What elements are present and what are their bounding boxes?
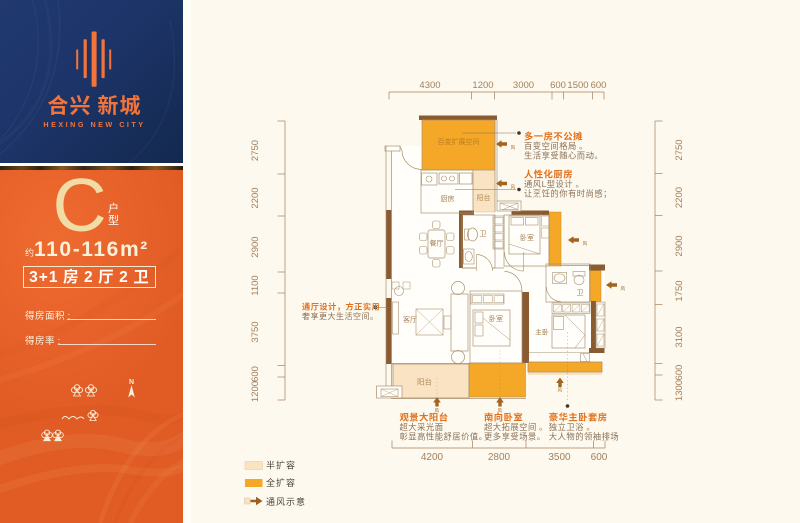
svg-text:卫: 卫 bbox=[480, 229, 487, 239]
svg-text:风: 风 bbox=[498, 408, 503, 414]
svg-text:600: 600 bbox=[250, 366, 261, 382]
svg-text:600: 600 bbox=[591, 80, 607, 91]
svg-text:主卧: 主卧 bbox=[535, 328, 549, 338]
svg-text:人性化厨房: 人性化厨房 bbox=[524, 167, 573, 181]
svg-text:2200: 2200 bbox=[674, 187, 685, 208]
svg-text:超大拓展空间 。: 超大拓展空间 。 bbox=[484, 421, 548, 433]
svg-text:2750: 2750 bbox=[250, 140, 261, 161]
svg-text:多一房不公摊: 多一房不公摊 bbox=[524, 129, 583, 143]
svg-text:全扩容: 全扩容 bbox=[266, 476, 296, 489]
svg-text:独立卫浴 。: 独立卫浴 。 bbox=[549, 421, 595, 433]
svg-text:南向卧室: 南向卧室 bbox=[484, 410, 523, 424]
svg-text:通风示意: 通风示意 bbox=[266, 495, 306, 508]
svg-text:3500: 3500 bbox=[548, 452, 571, 463]
svg-text:客厅: 客厅 bbox=[403, 315, 417, 325]
svg-text:生活享受随心而动。: 生活享受随心而动。 bbox=[524, 150, 603, 162]
svg-text:通风L型设计 。: 通风L型设计 。 bbox=[524, 178, 584, 190]
svg-text:半扩容: 半扩容 bbox=[266, 459, 296, 472]
svg-text:彰显高性能舒居价值。: 彰显高性能舒居价值。 bbox=[400, 431, 488, 443]
svg-text:1300: 1300 bbox=[674, 380, 685, 401]
svg-text:大人物的领袖排场: 大人物的领袖排场 bbox=[549, 431, 619, 443]
svg-text:600: 600 bbox=[550, 80, 566, 91]
svg-text:2900: 2900 bbox=[674, 235, 685, 256]
svg-text:2900: 2900 bbox=[250, 236, 261, 257]
svg-text:奢享更大生活空间。: 奢享更大生活空间。 bbox=[302, 311, 379, 322]
svg-text:百变空间格局 。: 百变空间格局 。 bbox=[524, 140, 588, 152]
svg-text:4300: 4300 bbox=[419, 80, 440, 91]
svg-text:1500: 1500 bbox=[567, 80, 588, 91]
svg-text:阳台: 阳台 bbox=[477, 193, 491, 203]
svg-text:卧室: 卧室 bbox=[520, 233, 534, 243]
svg-text:卧室: 卧室 bbox=[489, 314, 503, 324]
svg-text:2800: 2800 bbox=[488, 452, 511, 463]
svg-text:600: 600 bbox=[591, 452, 608, 463]
svg-text:1200: 1200 bbox=[250, 381, 261, 402]
svg-text:风: 风 bbox=[558, 388, 563, 394]
svg-text:餐厅: 餐厅 bbox=[430, 239, 444, 249]
svg-text:风: 风 bbox=[435, 408, 440, 414]
svg-text:超大采光面: 超大采光面 bbox=[400, 421, 444, 433]
svg-text:600: 600 bbox=[674, 365, 685, 381]
svg-text:1200: 1200 bbox=[472, 80, 493, 91]
svg-text:让烹饪的你有时尚感；: 让烹饪的你有时尚感； bbox=[524, 188, 612, 200]
svg-text:更多享受场景。: 更多享受场景。 bbox=[484, 431, 546, 443]
svg-text:3000: 3000 bbox=[513, 80, 534, 91]
svg-text:风: 风 bbox=[511, 185, 516, 191]
svg-text:百变扩展空间: 百变扩展空间 bbox=[438, 137, 480, 147]
svg-text:阳台: 阳台 bbox=[417, 377, 432, 388]
svg-text:豪华主卧套房: 豪华主卧套房 bbox=[549, 410, 608, 424]
svg-text:厨房: 厨房 bbox=[441, 194, 455, 204]
svg-text:通厅设计，方正实用: 通厅设计，方正实用 bbox=[302, 301, 380, 313]
svg-text:3100: 3100 bbox=[674, 326, 685, 347]
svg-text:风: 风 bbox=[583, 241, 588, 247]
svg-text:N: N bbox=[129, 379, 134, 386]
svg-text:4200: 4200 bbox=[421, 452, 444, 463]
svg-text:风: 风 bbox=[511, 145, 516, 151]
svg-text:1750: 1750 bbox=[674, 280, 685, 301]
svg-text:卫: 卫 bbox=[577, 288, 584, 298]
svg-text:观景大阳台: 观景大阳台 bbox=[400, 410, 449, 424]
svg-text:2200: 2200 bbox=[250, 187, 261, 208]
svg-text:1100: 1100 bbox=[250, 275, 261, 295]
svg-text:风: 风 bbox=[621, 286, 626, 292]
svg-text:3750: 3750 bbox=[250, 321, 261, 342]
svg-text:2750: 2750 bbox=[674, 139, 685, 160]
